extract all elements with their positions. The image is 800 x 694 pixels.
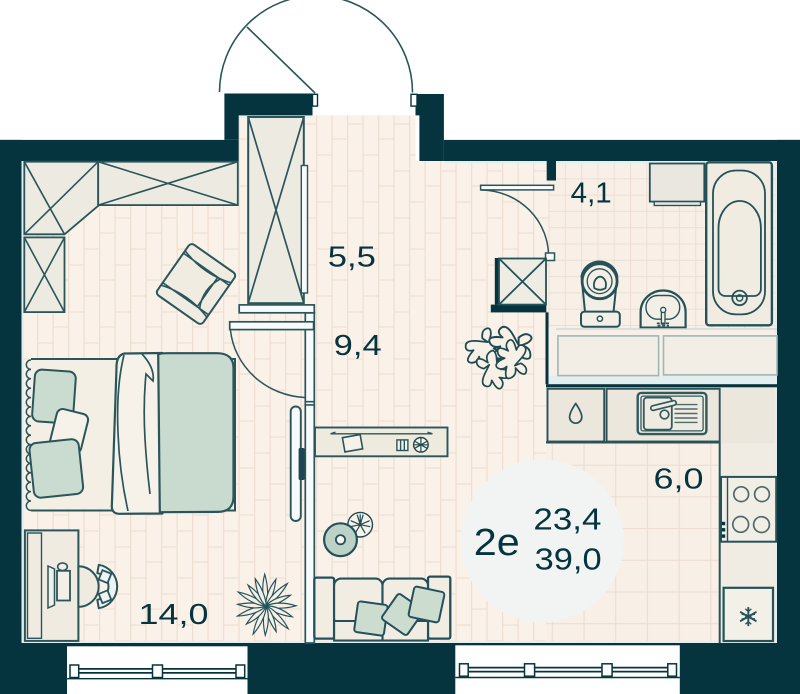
- svg-text:2е: 2е: [474, 522, 520, 564]
- svg-text:4,1: 4,1: [571, 177, 612, 209]
- svg-text:6,0: 6,0: [654, 464, 704, 496]
- svg-text:5,5: 5,5: [328, 242, 376, 274]
- svg-text:23,4: 23,4: [533, 502, 601, 537]
- svg-text:14,0: 14,0: [139, 599, 209, 631]
- svg-text:39,0: 39,0: [535, 541, 602, 576]
- svg-text:9,4: 9,4: [334, 330, 382, 362]
